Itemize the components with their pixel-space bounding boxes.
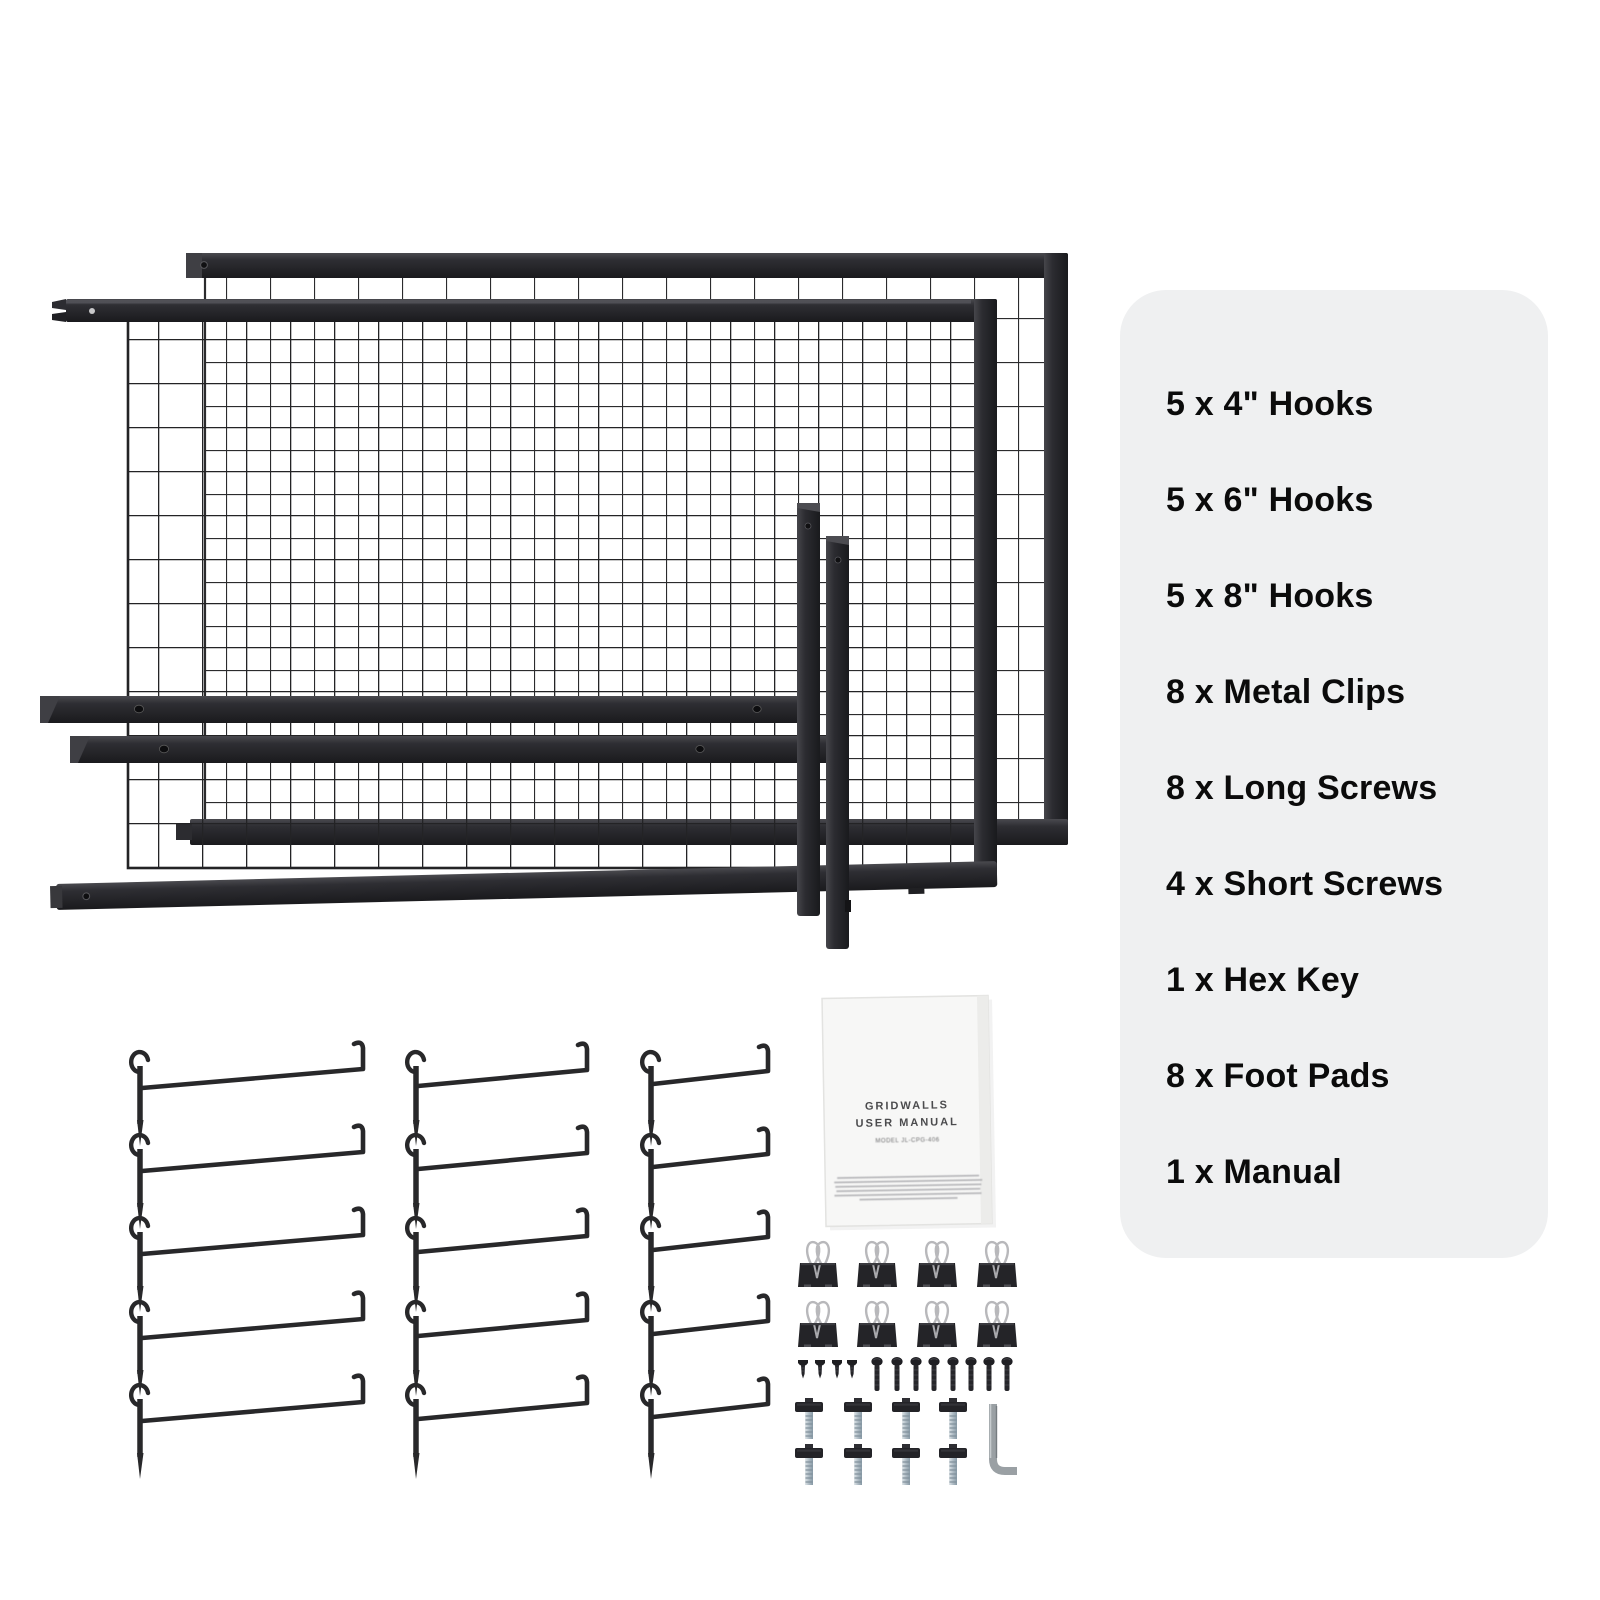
hook-4in — [642, 1046, 768, 1146]
part-item-4in-hooks: 5 x 4" Hooks — [1166, 356, 1520, 452]
part-item-8in-hooks: 5 x 8" Hooks — [1166, 548, 1520, 644]
metal-clip — [917, 1242, 957, 1287]
hook-4in — [642, 1379, 768, 1479]
foot-pad — [939, 1398, 967, 1439]
long-screw — [928, 1357, 939, 1391]
foot-pad — [844, 1444, 872, 1485]
part-item-hex-key: 1 x Hex Key — [1166, 932, 1520, 1028]
screws-group — [798, 1357, 1013, 1391]
hook-8in — [131, 1043, 363, 1146]
foot-pad — [844, 1398, 872, 1439]
leg-bar-vertical — [826, 536, 851, 949]
hook-8in — [131, 1376, 363, 1479]
leg-bar-horizontal — [70, 736, 832, 763]
front-frame-fork-prong — [52, 299, 66, 310]
front-bottom-end-cap — [50, 886, 63, 908]
short-screw — [815, 1360, 825, 1379]
foot-pad — [795, 1398, 823, 1439]
rear-frame-end-cap — [186, 253, 202, 278]
manual-model-line: MODEL JL-CPG-406 — [875, 1137, 939, 1144]
rear-frame-top-bar — [186, 253, 1068, 278]
manual-title: GRIDWALLS — [865, 1099, 949, 1112]
manual-subtitle: USER MANUAL — [855, 1116, 958, 1130]
foot-pad — [892, 1398, 920, 1439]
metal-clip — [977, 1242, 1017, 1287]
part-item-manual: 1 x Manual — [1166, 1124, 1520, 1220]
long-screw — [983, 1357, 994, 1391]
hook-6in — [407, 1294, 587, 1396]
long-screw — [1001, 1357, 1012, 1391]
leg-bar-horizontal — [40, 696, 802, 723]
short-screw — [832, 1360, 842, 1379]
long-screw — [947, 1357, 958, 1391]
metal-clip — [798, 1242, 838, 1287]
front-frame-top-highlight — [66, 300, 971, 304]
front-bottom-hole — [83, 893, 90, 900]
parts-list-panel: 5 x 4" Hooks 5 x 6" Hooks 5 x 8" Hooks 8… — [1120, 290, 1548, 1258]
hook-4in — [642, 1212, 768, 1312]
metal-clip — [977, 1302, 1017, 1347]
hook-8in — [131, 1209, 363, 1312]
front-bottom-tab — [908, 888, 924, 894]
front-frame-fork-prong — [52, 312, 66, 322]
part-item-short-screws: 4 x Short Screws — [1166, 836, 1520, 932]
rear-frame-hole — [201, 262, 208, 269]
metal-clip — [917, 1302, 957, 1347]
hook-8in — [131, 1126, 363, 1229]
short-screw — [847, 1360, 857, 1379]
hook-4in — [642, 1129, 768, 1229]
metal-clip — [798, 1302, 838, 1347]
hook-6in — [407, 1044, 587, 1146]
leg-bar-vertical — [797, 503, 820, 916]
front-frame-right-bar — [974, 299, 997, 882]
hook-4in — [642, 1296, 768, 1396]
product-figure: GRIDWALLS USER MANUAL MODEL JL-CPG-406 — [0, 0, 1600, 1600]
front-frame-hole — [89, 308, 95, 314]
metal-clip — [857, 1242, 897, 1287]
long-screw — [871, 1357, 882, 1391]
long-screw — [965, 1357, 976, 1391]
part-item-6in-hooks: 5 x 6" Hooks — [1166, 452, 1520, 548]
grid-panel-front — [50, 299, 997, 915]
foot-pad — [892, 1444, 920, 1485]
long-screw — [910, 1357, 921, 1391]
hook-6in — [407, 1127, 587, 1229]
metal-clip — [857, 1302, 897, 1347]
foot-pad — [939, 1444, 967, 1485]
hook-6in — [407, 1377, 587, 1479]
part-item-metal-clips: 8 x Metal Clips — [1166, 644, 1520, 740]
hex-key — [991, 1404, 1018, 1471]
hook-8in — [131, 1293, 363, 1396]
rear-frame-right-bar — [1044, 253, 1068, 845]
user-manual: GRIDWALLS USER MANUAL MODEL JL-CPG-406 — [822, 995, 996, 1230]
part-item-long-screws: 8 x Long Screws — [1166, 740, 1520, 836]
metal-clips-group — [798, 1242, 1017, 1347]
hooks-group — [131, 1043, 768, 1479]
foot-pads-group — [795, 1398, 967, 1485]
part-item-foot-pads: 8 x Foot Pads — [1166, 1028, 1520, 1124]
long-screw — [891, 1357, 902, 1391]
short-screw — [798, 1360, 808, 1379]
foot-pad — [795, 1444, 823, 1485]
hook-6in — [407, 1210, 587, 1312]
